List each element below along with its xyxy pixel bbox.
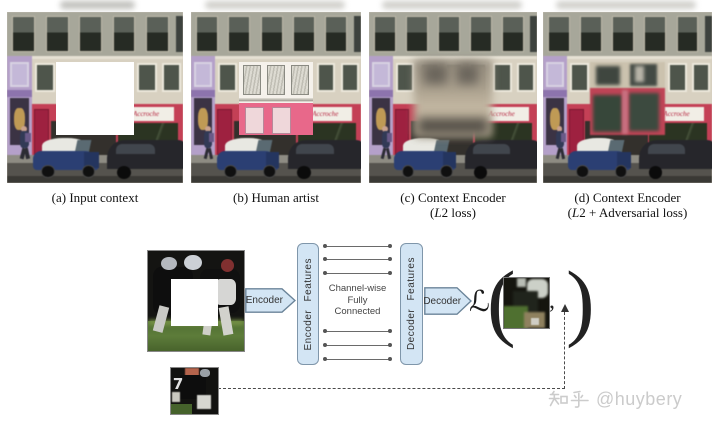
- photo-layer: [531, 318, 539, 325]
- photo-layer: [176, 16, 183, 52]
- photo-layer: [517, 63, 535, 92]
- photo-layer: [137, 63, 156, 92]
- photo-layer: [317, 63, 336, 92]
- caption-c-rest: 2 loss): [442, 205, 476, 220]
- masked-region-white: [56, 62, 133, 136]
- smart-car: [576, 165, 589, 177]
- dashed-connector-vertical: [564, 312, 565, 389]
- pedestrian: [387, 133, 392, 142]
- photo-layer: [272, 107, 291, 133]
- encoder-features-label: Encoder Features: [303, 258, 314, 351]
- paren-close: ): [566, 261, 595, 341]
- smart-car: [615, 165, 628, 177]
- street-sign-text: Accroche: [133, 110, 159, 118]
- photo-layer: [629, 93, 659, 131]
- photo-layer: [438, 16, 460, 52]
- pedestrian: [25, 133, 30, 142]
- photo-layer: [261, 16, 283, 52]
- encoder-features-box: Encoder Features: [297, 243, 319, 365]
- dark-car: [116, 144, 155, 154]
- top-crop-smudge: [205, 1, 345, 9]
- zhihu-logo: [548, 389, 590, 410]
- top-crop-smudge: [382, 1, 522, 9]
- photo-layer: [374, 16, 396, 52]
- photo-layer: [196, 16, 218, 52]
- photo-layer: [369, 90, 393, 97]
- photo-layer: [493, 63, 511, 92]
- photo-layer: [325, 16, 347, 52]
- photo-layer: [12, 16, 35, 52]
- loss-comma: ,: [549, 288, 555, 315]
- smart-car: [402, 165, 415, 177]
- photo-layer: [612, 16, 634, 52]
- channel-line-3: Connected: [317, 306, 398, 318]
- connector-line: [325, 273, 390, 274]
- decoder-features-box: Decoder Features: [400, 243, 423, 365]
- photo-layer: [228, 16, 250, 52]
- decoder-label: Decoder: [424, 287, 460, 315]
- photo-layer: [502, 16, 524, 52]
- dark-car: [474, 166, 487, 179]
- photo-layer: [10, 62, 29, 88]
- dashed-connector-horizontal: [218, 388, 565, 389]
- dark-car: [648, 144, 685, 154]
- dark-car: [649, 166, 663, 179]
- figure-page: Accroche Accroche Accroche Accroche (a) …: [0, 0, 720, 431]
- photo-layer: [705, 16, 712, 52]
- connector-line: [325, 246, 390, 247]
- ground-truth-patch-image: 7: [170, 367, 219, 415]
- dark-car: [117, 166, 131, 179]
- photo-context-encoder-adv: Accroche: [543, 12, 712, 183]
- photo-layer: [200, 369, 210, 377]
- photo-layer: [596, 66, 620, 85]
- photo-layer: [530, 16, 537, 52]
- photo-layer: [172, 392, 180, 402]
- photo-layer: [171, 404, 192, 414]
- street-sign-text: Accroche: [663, 110, 689, 118]
- photo-layer: [79, 16, 102, 52]
- caption-a: (a) Input context: [7, 190, 183, 205]
- photo-layer: [194, 62, 213, 88]
- connector-line: [325, 259, 390, 260]
- photo-layer: [46, 16, 69, 52]
- photo-layer: [162, 63, 181, 92]
- photo-layer: [245, 107, 264, 133]
- photo-layer: [7, 90, 32, 97]
- street-sign-text: Accroche: [489, 110, 515, 118]
- smart-car: [82, 165, 95, 177]
- caption-d-line1: (d) Context Encoder: [543, 190, 712, 205]
- photo-layer: [161, 257, 176, 270]
- human-artist-fill: [239, 62, 314, 136]
- top-crop-smudge: [60, 1, 135, 9]
- photo-layer: [546, 62, 565, 88]
- channel-wise-label: Channel-wise Fully Connected: [317, 283, 398, 318]
- photo-layer: [406, 16, 428, 52]
- photo-layer: [635, 66, 644, 82]
- dashed-arrowhead-icon: [561, 304, 569, 312]
- caption-c-line2: (L2 loss): [369, 205, 537, 220]
- caption-d-rest: 2 + Adversarial loss): [579, 205, 687, 220]
- jersey-number: 7: [173, 375, 183, 393]
- photo-layer: [372, 62, 390, 88]
- predicted-patch-image: [503, 277, 550, 329]
- photo-layer: [457, 64, 479, 84]
- smart-car: [41, 165, 54, 177]
- channel-line-2: Fully: [317, 295, 398, 307]
- photo-layer: [517, 278, 526, 287]
- street-sign-text: Accroche: [312, 110, 338, 118]
- pedestrian: [561, 133, 566, 142]
- photo-layer: [215, 279, 236, 305]
- photo-layer: [396, 63, 414, 92]
- adversarial-fill: [590, 62, 664, 136]
- photo-layer: [622, 90, 628, 134]
- watermark-handle: @huybery: [596, 389, 682, 410]
- photo-layer: [341, 63, 360, 92]
- photo-layer: [184, 255, 201, 270]
- top-crop-smudge: [556, 1, 696, 9]
- photo-layer: [267, 65, 285, 96]
- input-mask-hole: [171, 279, 218, 326]
- encoder-label: Encoder: [245, 288, 284, 313]
- decoder-features-label: Decoder Features: [406, 257, 417, 350]
- connector-line: [325, 345, 390, 346]
- photo-layer: [239, 98, 314, 102]
- l2-blur-fill: [414, 60, 491, 137]
- encoder-arrow: Encoder: [245, 288, 296, 313]
- dark-car: [296, 144, 333, 154]
- photo-layer: [293, 16, 315, 52]
- photo-layer: [146, 16, 169, 52]
- decoder-arrow: Decoder: [424, 287, 472, 315]
- photo-layer: [692, 63, 711, 92]
- photo-layer: [354, 16, 361, 52]
- photo-layer: [418, 118, 488, 133]
- channel-line-1: Channel-wise: [317, 283, 398, 295]
- photo-layer: [191, 90, 215, 97]
- caption-b: (b) Human artist: [191, 190, 361, 205]
- photo-layer: [668, 63, 687, 92]
- photo-layer: [580, 16, 602, 52]
- photo-layer: [593, 95, 621, 132]
- smart-car: [263, 165, 276, 177]
- smart-car: [440, 165, 453, 177]
- photo-layer: [570, 63, 589, 92]
- diagram-input-image: [147, 250, 245, 352]
- caption-c-var: L: [434, 205, 441, 220]
- photo-layer: [243, 65, 261, 96]
- photo-input-context: Accroche: [7, 12, 183, 183]
- photo-human-artist: Accroche: [191, 12, 361, 183]
- photo-context-encoder-l2: Accroche: [369, 12, 537, 183]
- photo-layer: [677, 16, 699, 52]
- dark-car: [297, 166, 311, 179]
- photo-layer: [543, 90, 567, 97]
- photo-layer: [470, 16, 492, 52]
- watermark: @huybery: [548, 389, 682, 410]
- photo-layer: [197, 395, 211, 410]
- connector-line: [325, 359, 390, 360]
- connector-line: [325, 331, 390, 332]
- photo-layer: [218, 63, 237, 92]
- photo-layer: [35, 63, 54, 92]
- photo-layer: [291, 65, 309, 96]
- smart-car: [224, 165, 237, 177]
- caption-c-line1: (c) Context Encoder: [369, 190, 537, 205]
- dark-car: [473, 144, 510, 154]
- pedestrian: [209, 133, 214, 142]
- photo-layer: [113, 16, 136, 52]
- photo-layer: [644, 16, 666, 52]
- photo-layer: [424, 64, 447, 84]
- photo-layer: [548, 16, 570, 52]
- caption-d-line2: (L2 + Adversarial loss): [543, 205, 712, 220]
